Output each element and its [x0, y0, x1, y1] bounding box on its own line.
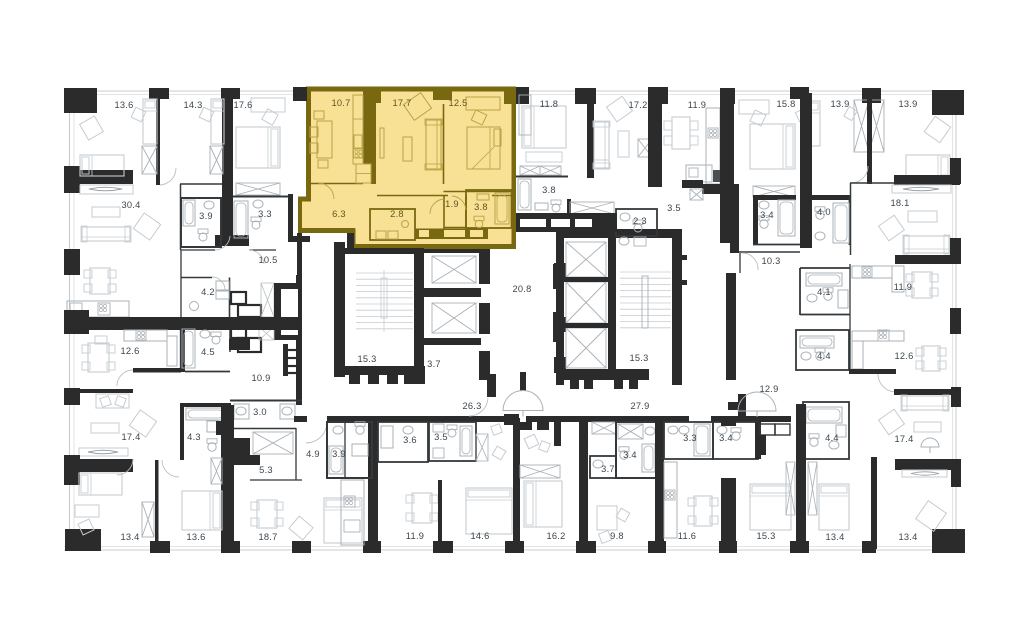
svg-text:3.9: 3.9	[332, 449, 346, 459]
svg-text:3.7: 3.7	[601, 464, 615, 474]
svg-text:26.3: 26.3	[462, 401, 481, 411]
svg-text:12.5: 12.5	[448, 98, 467, 108]
svg-text:15.3: 15.3	[357, 354, 376, 364]
svg-text:17.2: 17.2	[628, 100, 647, 110]
svg-text:15.3: 15.3	[629, 353, 648, 363]
svg-text:3.8: 3.8	[474, 202, 488, 212]
svg-text:14.3: 14.3	[183, 100, 202, 110]
svg-text:3.7: 3.7	[427, 359, 441, 369]
svg-text:11.9: 11.9	[688, 100, 706, 110]
svg-text:4.5: 4.5	[201, 347, 215, 357]
svg-text:3.8: 3.8	[542, 185, 556, 195]
svg-text:6.3: 6.3	[332, 209, 346, 219]
svg-text:13.4: 13.4	[120, 532, 139, 542]
svg-text:17.4: 17.4	[121, 432, 140, 442]
svg-text:30.4: 30.4	[121, 200, 140, 210]
svg-text:2.8: 2.8	[390, 209, 404, 219]
svg-text:4.4: 4.4	[825, 433, 839, 443]
svg-text:15.8: 15.8	[776, 99, 795, 109]
svg-text:3.4: 3.4	[719, 433, 733, 443]
svg-text:12.9: 12.9	[759, 384, 778, 394]
svg-text:9.8: 9.8	[610, 531, 624, 541]
svg-text:4.2: 4.2	[201, 287, 215, 297]
svg-text:10.9: 10.9	[251, 373, 270, 383]
svg-text:18.1: 18.1	[890, 198, 909, 208]
svg-text:13.4: 13.4	[825, 532, 844, 542]
svg-text:4.9: 4.9	[306, 449, 320, 459]
svg-text:4.1: 4.1	[817, 287, 831, 297]
svg-text:3.3: 3.3	[258, 209, 272, 219]
svg-text:4.4: 4.4	[817, 351, 831, 361]
svg-text:11.6: 11.6	[678, 531, 696, 541]
svg-text:13.4: 13.4	[898, 532, 917, 542]
svg-text:3.0: 3.0	[253, 407, 267, 417]
svg-text:5.3: 5.3	[259, 465, 273, 475]
svg-text:10.3: 10.3	[761, 256, 780, 266]
svg-text:27.9: 27.9	[630, 401, 649, 411]
svg-text:10.5: 10.5	[258, 255, 277, 265]
svg-text:3.9: 3.9	[199, 211, 213, 221]
svg-text:13.9: 13.9	[898, 99, 917, 109]
svg-text:11.9: 11.9	[894, 282, 912, 292]
svg-text:12.6: 12.6	[120, 346, 139, 356]
svg-text:18.7: 18.7	[258, 532, 277, 542]
svg-text:3.5: 3.5	[667, 203, 681, 213]
svg-text:13.6: 13.6	[186, 532, 205, 542]
svg-text:4.3: 4.3	[187, 432, 201, 442]
svg-text:11.8: 11.8	[540, 99, 558, 109]
svg-text:4.0: 4.0	[817, 207, 831, 217]
svg-text:1.9: 1.9	[445, 199, 459, 209]
svg-text:3.4: 3.4	[760, 210, 774, 220]
svg-text:3.3: 3.3	[683, 433, 697, 443]
svg-text:20.8: 20.8	[512, 284, 531, 294]
svg-text:17.6: 17.6	[233, 100, 252, 110]
svg-text:12.6: 12.6	[894, 351, 913, 361]
svg-text:16.2: 16.2	[546, 531, 565, 541]
svg-text:17.4: 17.4	[894, 434, 913, 444]
svg-text:17.7: 17.7	[392, 98, 411, 108]
svg-text:15.3: 15.3	[756, 531, 775, 541]
svg-text:14.6: 14.6	[470, 531, 489, 541]
svg-text:2.3: 2.3	[633, 216, 647, 226]
svg-text:3.5: 3.5	[434, 432, 448, 442]
svg-text:11.9: 11.9	[406, 531, 424, 541]
svg-text:13.6: 13.6	[114, 100, 133, 110]
svg-text:3.6: 3.6	[403, 435, 417, 445]
svg-text:10.7: 10.7	[331, 98, 350, 108]
svg-text:13.9: 13.9	[830, 99, 849, 109]
svg-text:3.4: 3.4	[623, 450, 637, 460]
